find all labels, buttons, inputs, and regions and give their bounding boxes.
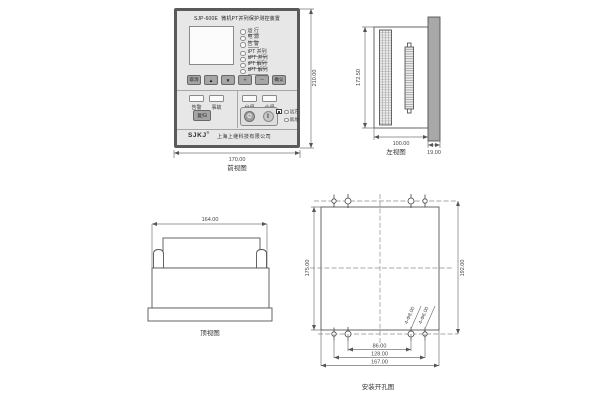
minus-key[interactable]: － bbox=[255, 75, 269, 85]
cutout-width-dim: 167.00 bbox=[371, 360, 388, 366]
left-thickness-dim: 19.00 bbox=[427, 150, 441, 156]
led-pt2-split: ⅡPT 解列 bbox=[240, 69, 297, 75]
brand-text: SJKJ bbox=[188, 132, 207, 139]
open-close-button-group: O I bbox=[240, 107, 278, 126]
led-dot bbox=[240, 36, 246, 42]
top-view-caption: 顶视图 bbox=[200, 328, 220, 337]
drawing-linework: 210.00 170.00 前视图 172.50 100.00 19.00 左视… bbox=[0, 0, 600, 400]
top-view: 164.00 顶视图 bbox=[148, 217, 272, 337]
signal-window-alarm bbox=[189, 95, 204, 102]
down-key[interactable]: ▼ bbox=[221, 75, 235, 85]
top-width-dim: 164.00 bbox=[202, 217, 219, 223]
terminal-strip bbox=[380, 30, 392, 125]
mounting-view: 175.00 192.00 86.00 128.00 167.00 4-Φ8.0… bbox=[305, 194, 466, 391]
switch-window-open bbox=[242, 95, 257, 102]
led-dot bbox=[284, 110, 289, 115]
mounting-clip-left bbox=[154, 250, 164, 269]
brand-logo: SJKJ® bbox=[188, 131, 210, 139]
led-dot bbox=[240, 57, 246, 63]
comm-port-icon bbox=[276, 109, 282, 114]
open-button[interactable]: O bbox=[244, 111, 255, 122]
led-remote: 远方 bbox=[284, 110, 297, 115]
confirm-key[interactable]: 确认 bbox=[272, 75, 286, 85]
brand-mark: ® bbox=[207, 131, 210, 135]
signal-window-label: 事故 bbox=[209, 104, 224, 111]
led-label: 远方 bbox=[290, 109, 299, 115]
up-key[interactable]: ▲ bbox=[204, 75, 218, 85]
device-model: SJP-600E bbox=[194, 16, 218, 22]
led-label: ⅡPT 解列 bbox=[248, 68, 268, 75]
front-view-caption: 前视图 bbox=[227, 163, 247, 172]
mounting-clip-right bbox=[257, 250, 267, 269]
left-view-caption: 左视图 bbox=[386, 147, 406, 156]
led-dot bbox=[240, 51, 246, 57]
outer-hole-span-dim: 128.00 bbox=[371, 352, 388, 358]
close-button[interactable]: I bbox=[263, 111, 274, 122]
mounting-view-caption: 安装开孔图 bbox=[362, 382, 395, 391]
left-depth-dim: 100.00 bbox=[393, 141, 410, 147]
lcd-screen bbox=[189, 26, 234, 65]
plus-key[interactable]: ＋ bbox=[238, 75, 252, 85]
led-dot bbox=[240, 29, 246, 35]
device-name: 微机PT并列保护测控装置 bbox=[221, 16, 280, 22]
signal-window-fault bbox=[209, 95, 224, 102]
led-dot bbox=[240, 42, 246, 48]
inner-hole-span-dim: 86.00 bbox=[373, 344, 387, 350]
led-dot bbox=[240, 63, 246, 69]
left-height-dim: 172.50 bbox=[356, 69, 362, 86]
left-view-bezel bbox=[428, 17, 440, 141]
left-view: 172.50 100.00 19.00 左视图 bbox=[356, 17, 441, 156]
top-view-bezel bbox=[148, 308, 272, 321]
hole-size-label-1: 4-Φ8.00 bbox=[404, 306, 417, 325]
reset-key[interactable]: 复归 bbox=[193, 110, 211, 121]
led-label: 告 警 bbox=[248, 42, 259, 49]
switch-window-close bbox=[262, 95, 277, 102]
panel-divider bbox=[177, 129, 297, 130]
device-title: SJP-600E 微机PT并列保护测控装置 bbox=[177, 15, 297, 22]
cancel-key[interactable]: 取消 bbox=[187, 75, 201, 85]
led-dot bbox=[284, 118, 289, 123]
technical-drawing-sheet: 210.00 170.00 前视图 172.50 100.00 19.00 左视… bbox=[0, 0, 600, 400]
comm-port-pin bbox=[278, 111, 280, 113]
rear-connector bbox=[405, 47, 414, 109]
led-dot bbox=[240, 69, 246, 75]
led-alarm: 告 警 bbox=[240, 42, 297, 48]
front-width-dim: 170.00 bbox=[229, 157, 246, 163]
panel-divider-vertical bbox=[237, 90, 238, 128]
cutout-height-dim: 175.00 bbox=[305, 260, 311, 277]
led-label: 就地 bbox=[290, 117, 299, 123]
led-local: 就地 bbox=[284, 118, 297, 123]
device-front-panel: SJP-600E 微机PT并列保护测控装置 运 行 电 源 告 警 ⅠPT 并列… bbox=[174, 8, 300, 148]
hole-row-span-dim: 192.00 bbox=[460, 260, 466, 277]
company-name: 上海上继科技有限公司 bbox=[217, 133, 271, 140]
front-height-dim: 210.00 bbox=[312, 70, 318, 87]
